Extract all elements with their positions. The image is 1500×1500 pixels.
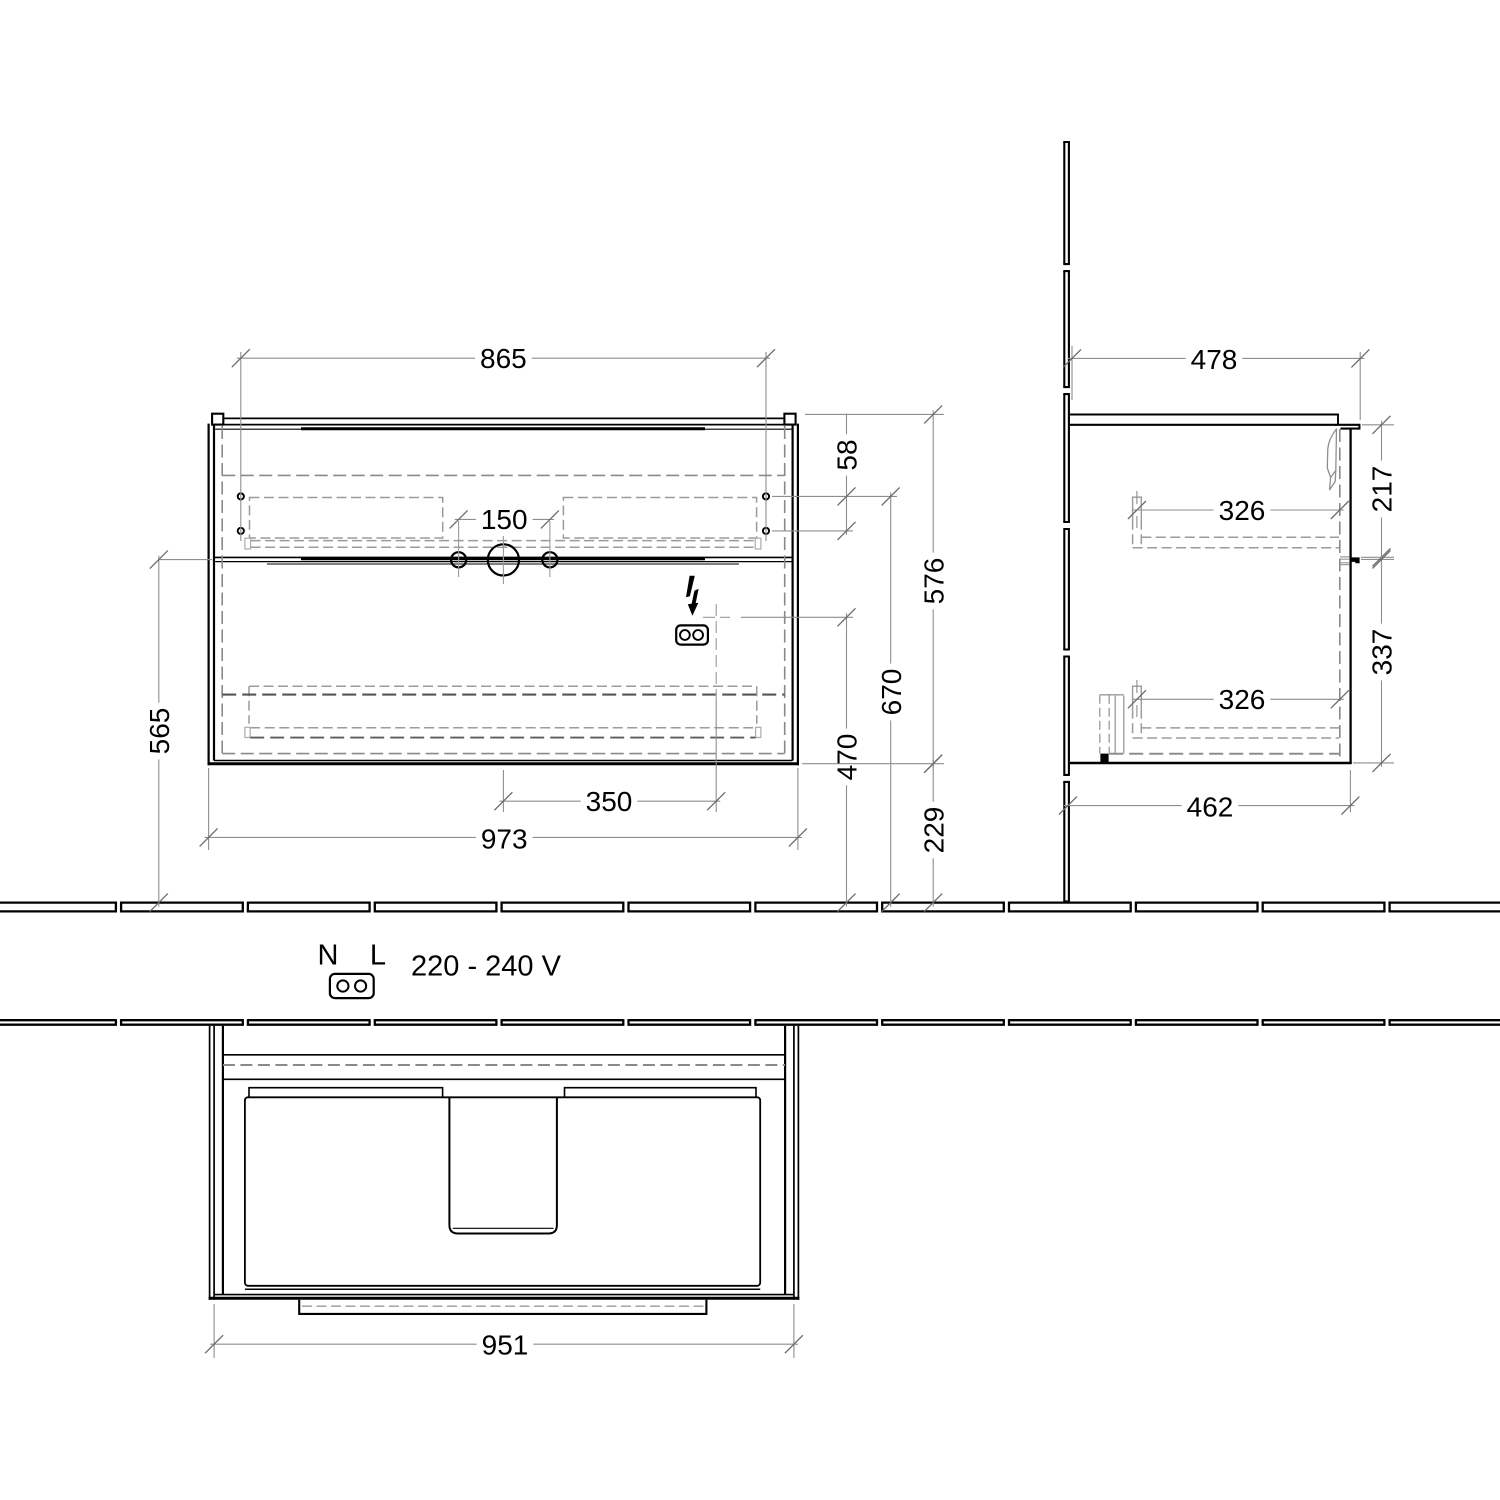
svg-text:462: 462 [1187,792,1234,823]
svg-text:326: 326 [1219,495,1266,526]
svg-text:576: 576 [918,558,949,605]
svg-text:973: 973 [481,824,528,855]
svg-text:58: 58 [832,439,863,470]
svg-text:670: 670 [876,669,907,716]
svg-text:217: 217 [1367,466,1398,513]
svg-text:337: 337 [1367,629,1398,676]
svg-text:150: 150 [481,504,528,535]
svg-text:951: 951 [482,1330,529,1361]
svg-text:470: 470 [832,734,863,781]
svg-text:565: 565 [144,708,175,755]
svg-text:N: N [318,940,339,972]
svg-text:478: 478 [1191,344,1238,375]
svg-text:350: 350 [586,786,633,817]
svg-text:229: 229 [918,807,949,854]
svg-text:326: 326 [1219,684,1266,715]
svg-text:L: L [370,940,386,972]
svg-text:865: 865 [480,343,527,374]
svg-text:220 - 240 V: 220 - 240 V [411,951,562,983]
